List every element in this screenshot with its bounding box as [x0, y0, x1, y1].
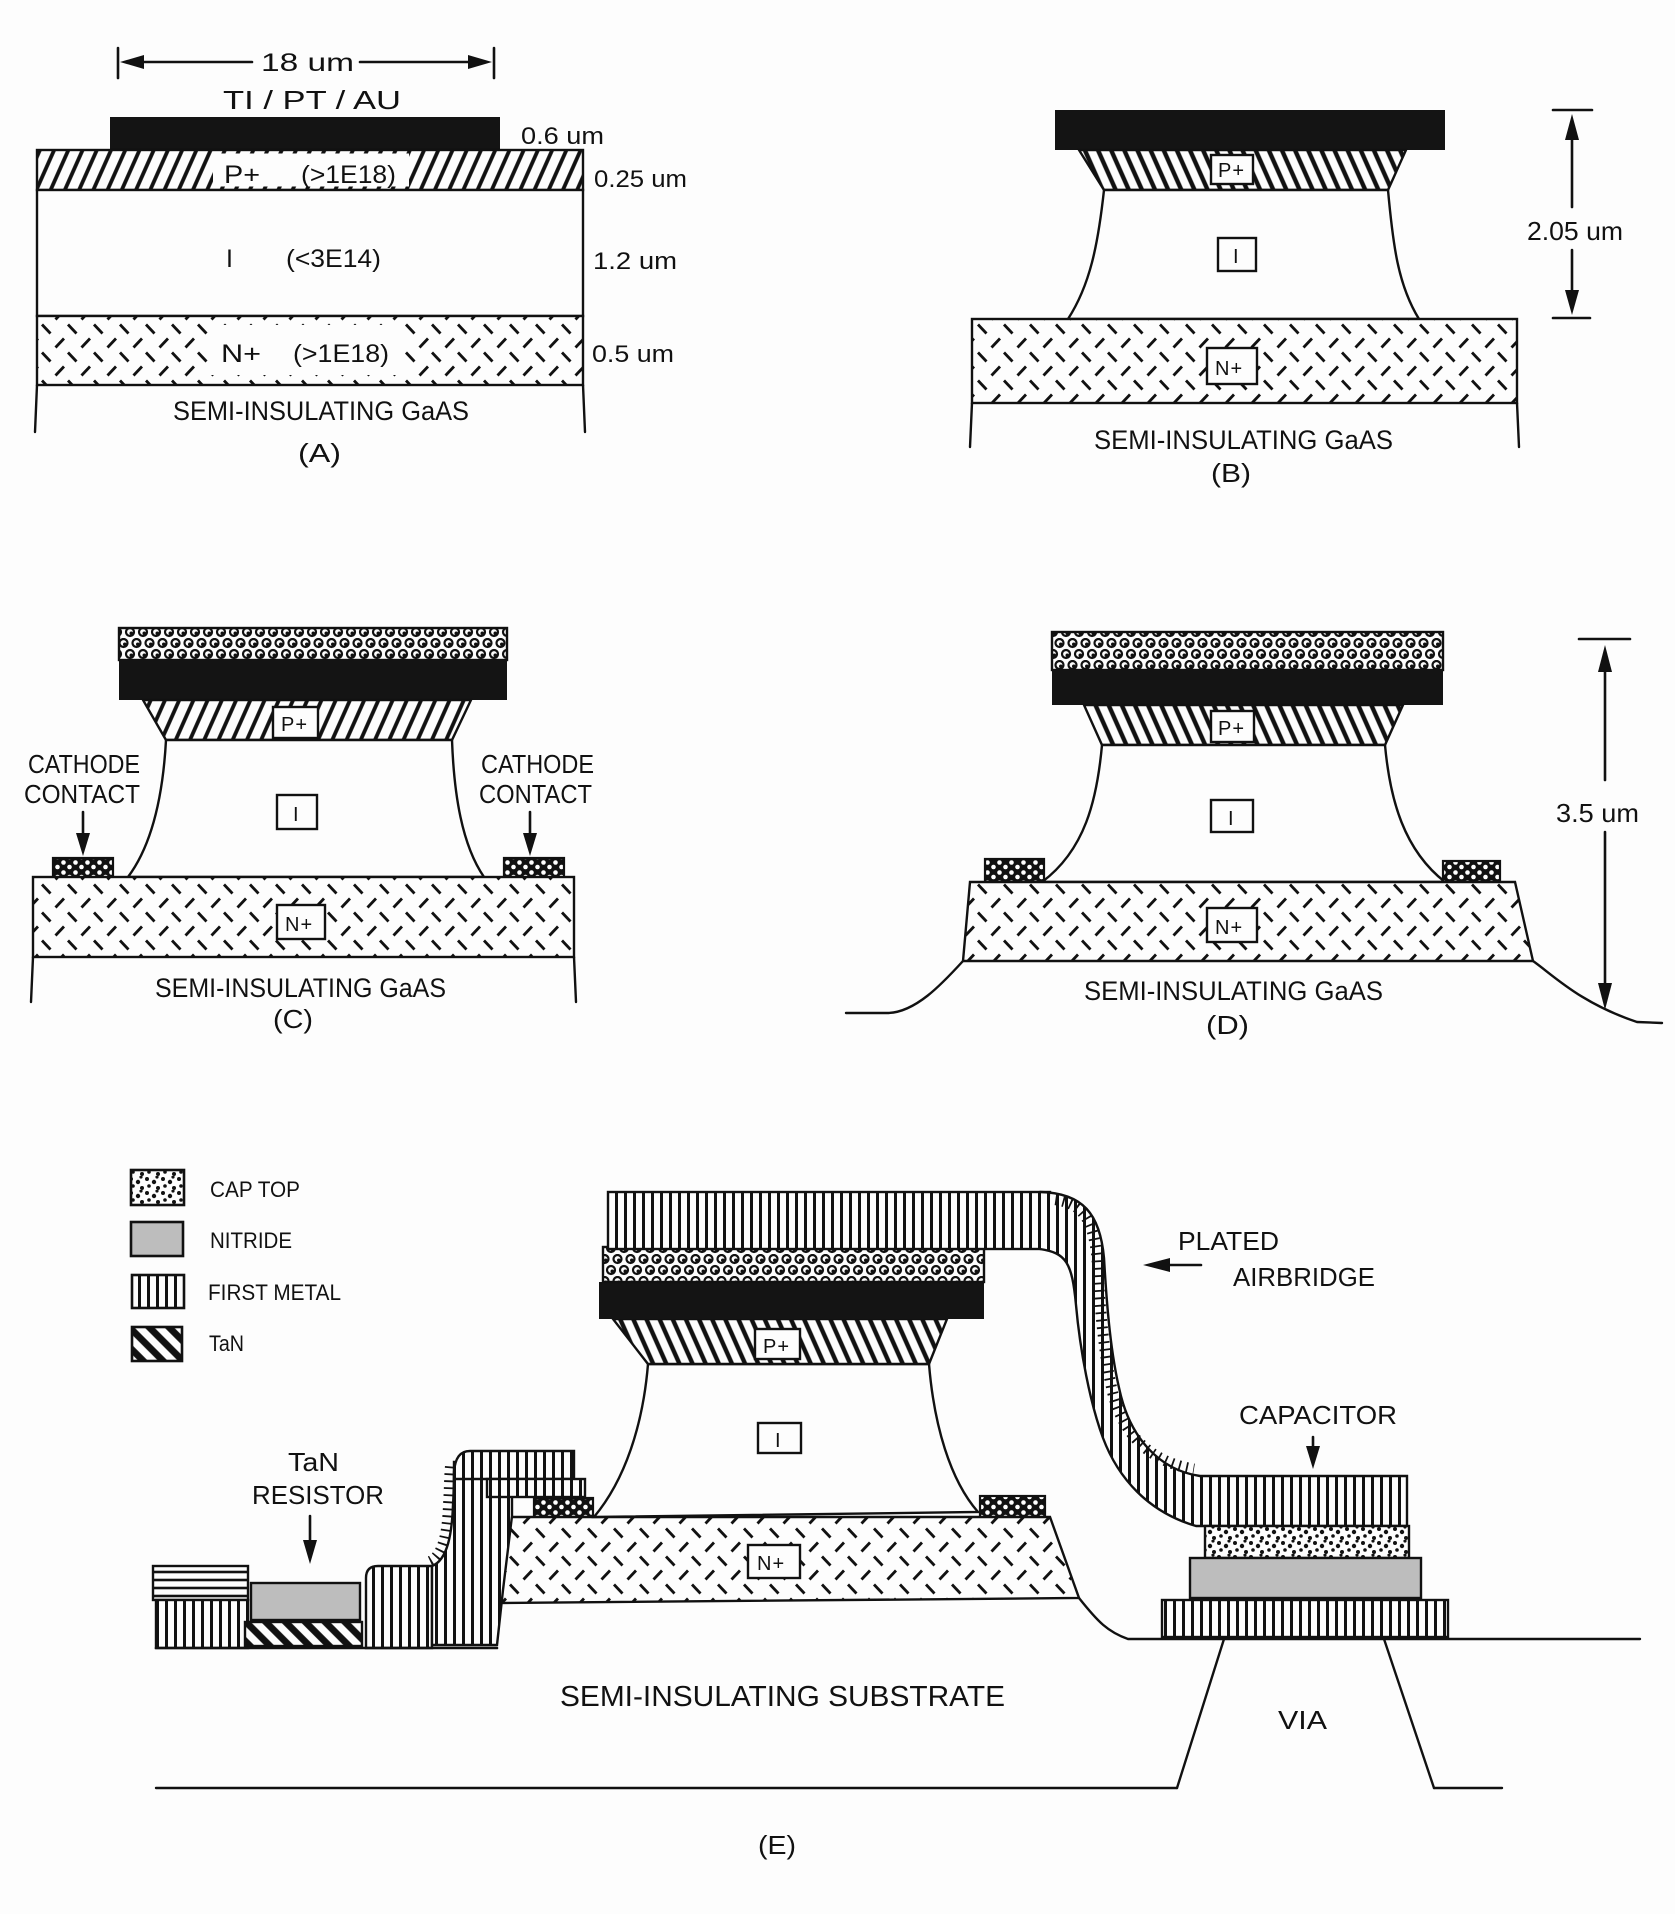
svg-text:(E): (E): [758, 1830, 796, 1860]
svg-text:SEMI-INSULATING GaAS: SEMI-INSULATING GaAS: [1094, 425, 1393, 455]
svg-text:P+: P+: [1218, 160, 1245, 182]
svg-text:AIRBRIDGE: AIRBRIDGE: [1233, 1262, 1375, 1292]
svg-text:P+: P+: [281, 714, 308, 736]
svg-text:I: I: [1228, 808, 1234, 830]
svg-text:(>1E18): (>1E18): [301, 161, 396, 189]
svg-text:2.05 um: 2.05 um: [1527, 216, 1623, 246]
svg-text:TI / PT / AU: TI / PT / AU: [223, 85, 401, 115]
svg-text:(B): (B): [1211, 458, 1251, 488]
svg-text:N+: N+: [1215, 358, 1243, 380]
svg-text:CONTACT: CONTACT: [24, 779, 140, 809]
svg-text:CONTACT: CONTACT: [479, 779, 592, 809]
svg-text:1.2 um: 1.2 um: [593, 248, 677, 275]
svg-text:N+: N+: [285, 914, 313, 936]
svg-text:SEMI-INSULATING GaAS: SEMI-INSULATING GaAS: [173, 396, 469, 426]
svg-text:FIRST METAL: FIRST METAL: [208, 1280, 341, 1305]
svg-text:(>1E18): (>1E18): [293, 340, 389, 368]
svg-text:N+: N+: [221, 340, 261, 368]
svg-text:I: I: [293, 804, 299, 826]
svg-text:P+: P+: [763, 1336, 790, 1358]
svg-text:TaN: TaN: [288, 1447, 339, 1477]
svg-text:0.5 um: 0.5 um: [592, 341, 674, 368]
svg-text:CAP TOP: CAP TOP: [210, 1177, 300, 1202]
svg-text:NITRIDE: NITRIDE: [210, 1228, 292, 1253]
svg-text:(D): (D): [1206, 1010, 1249, 1040]
svg-text:3.5 um: 3.5 um: [1556, 798, 1639, 828]
svg-text:N+: N+: [1215, 917, 1243, 939]
svg-text:TaN: TaN: [209, 1331, 244, 1356]
svg-text:I: I: [226, 245, 233, 273]
svg-text:CATHODE: CATHODE: [28, 749, 140, 779]
svg-text:0.25 um: 0.25 um: [594, 166, 687, 193]
svg-text:CATHODE: CATHODE: [481, 749, 594, 779]
svg-text:I: I: [775, 1430, 781, 1452]
svg-text:(C): (C): [273, 1004, 313, 1034]
svg-text:VIA: VIA: [1278, 1705, 1328, 1735]
svg-text:18 um: 18 um: [261, 49, 354, 77]
svg-text:SEMI-INSULATING GaAS: SEMI-INSULATING GaAS: [1084, 976, 1383, 1006]
svg-text:SEMI-INSULATING SUBSTRATE: SEMI-INSULATING SUBSTRATE: [560, 1681, 1005, 1713]
svg-text:I: I: [1233, 246, 1239, 268]
svg-text:P+: P+: [1218, 718, 1245, 740]
svg-text:PLATED: PLATED: [1178, 1226, 1279, 1256]
svg-text:N+: N+: [757, 1553, 785, 1575]
svg-text:P+: P+: [224, 161, 260, 189]
svg-text:(<3E14): (<3E14): [286, 245, 381, 273]
svg-text:(A): (A): [298, 438, 341, 468]
svg-text:CAPACITOR: CAPACITOR: [1239, 1400, 1397, 1430]
svg-text:SEMI-INSULATING GaAS: SEMI-INSULATING GaAS: [155, 973, 446, 1003]
svg-text:0.6 um: 0.6 um: [521, 123, 604, 150]
svg-text:RESISTOR: RESISTOR: [252, 1480, 384, 1510]
